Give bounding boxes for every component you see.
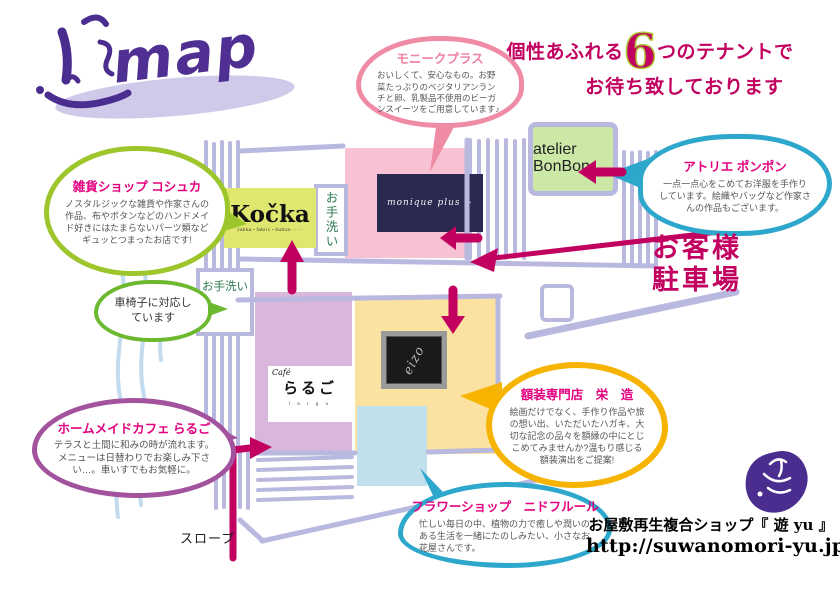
largo-cafe-script: Café: [272, 368, 348, 377]
monique-script: monique plus +: [387, 198, 473, 208]
bubble-koshuka: 雑貨ショップ コシュカ ノスタルジックな雑貨や作家さんの作品、布やボタンなどのハ…: [44, 146, 230, 276]
headline-part1: 個性あふれる: [507, 42, 624, 63]
restroom-upper-label: お手洗い: [322, 191, 341, 249]
bubble-koshuka-title: 雑貨ショップ コシュカ: [73, 176, 201, 195]
parking-line2: 駐車場: [652, 264, 742, 296]
shop-area-flower: [357, 406, 427, 486]
bubble-bonbon-title: アトリエ ポンポン: [683, 156, 786, 175]
headline-line2: お待ち致しております: [500, 78, 800, 97]
eizo-frame-logo: eizo: [381, 331, 447, 389]
bubble-nid-fleur: フラワーショップ ニドフルール 忙しい毎日の中、植物の力で癒しや潤いのある生活を…: [398, 482, 612, 568]
bubble-koshuka-body: ノスタルジックな雑貨や作家さんの作品、布やボタンなどのハンドメイド好きにはたまら…: [65, 198, 209, 247]
parking-label: お客様 駐車場: [652, 232, 742, 297]
atelier-bonbon-name: atelier BonBon: [533, 142, 613, 176]
bubble-bonbon: アトリエ ポンポン 一点一点心をこめてお洋服を手作りしています。絵織やバッグなど…: [638, 134, 832, 236]
headline: 個性あふれる6つのテナントで お待ち致しております: [500, 28, 800, 97]
atelier-bonbon-logo: atelier BonBon: [528, 122, 618, 196]
bubble-monique-title: モニークプラス: [396, 48, 483, 67]
headline-part2: つのテナントで: [657, 42, 794, 63]
largo-name: らるご: [272, 377, 348, 398]
eizo-name: eizo: [400, 343, 428, 377]
monique-logo-card: monique plus +: [377, 174, 483, 232]
parking-line1: お客様: [652, 232, 742, 264]
map-logo-text: map: [108, 11, 262, 96]
bubble-largo-title: ホームメイドカフェ らるご: [57, 418, 210, 437]
largo-tagline: l a r g o: [272, 401, 348, 406]
restroom-upper-box: お手洗い: [314, 184, 348, 256]
bubble-largo-body: テラスと土間に和みの時が流れます。メニューは日替わりでお楽しみ下さい…。車いすで…: [53, 440, 215, 478]
footer-url[interactable]: http://suwanomori-yu.jp/: [586, 535, 836, 557]
bubble-nid-title: フラワーショップ ニドフルール: [411, 496, 598, 515]
bubble-nid-body: 忙しい毎日の中、植物の力で癒しや潤いのある生活を一緒にたのしみたい、小さなお花屋…: [419, 518, 591, 554]
bubble-monique-body: おいしくて、安心なもの。お野菜たっぷりのベジタリアンランチと卵、乳製品不使用のビ…: [377, 70, 503, 116]
bubble-largo: ホームメイドカフェ らるご テラスと土間に和みの時が流れます。メニューは日替わり…: [32, 398, 236, 498]
footer: お屋敷再生複合ショップ『 遊 yu 』 http://suwanomori-yu…: [586, 514, 836, 557]
bubble-wheelchair: 車椅子に対応しています: [94, 280, 212, 342]
slope-label: スロープ: [180, 528, 235, 547]
bubble-bonbon-body: 一点一点心をこめてお洋服を手作りしています。絵織やバッグなど作家さんの作品もござ…: [659, 178, 811, 214]
restroom-lower-label: お手洗い: [202, 278, 248, 294]
bubble-eizo-body: 絵画だけでなく、手作り作品や旅の想い出、いただいたハガキ、大切な記念の品々を額縁…: [508, 406, 646, 467]
kocka-tagline: zakka・fabric・button ·····: [237, 227, 303, 233]
yu-stamp-icon: [746, 451, 808, 513]
headline-number: 6: [624, 24, 657, 80]
bubble-eizo: 額装専門店 栄 造 絵画だけでなく、手作り作品や旅の想い出、いただいたハガキ、大…: [486, 362, 668, 488]
bubble-monique: モニークプラス おいしくて、安心なもの。お野菜たっぷりのベジタリアンランチと卵、…: [356, 36, 524, 128]
kocka-name: Kočka: [230, 203, 310, 226]
kocka-logo: Kočka zakka・fabric・button ·····: [224, 188, 316, 248]
small-outbuilding: [540, 284, 574, 322]
map-flyer: お手洗い お手洗い Kočka zakka・fabric・button ····…: [0, 0, 840, 605]
bubble-wheelchair-body: 車椅子に対応しています: [114, 296, 192, 326]
bubble-eizo-title: 額装専門店 栄 造: [521, 384, 634, 403]
footer-shop-name: お屋敷再生複合ショップ『 遊 yu 』: [586, 514, 836, 535]
largo-logo: Café らるご l a r g o: [268, 366, 352, 422]
